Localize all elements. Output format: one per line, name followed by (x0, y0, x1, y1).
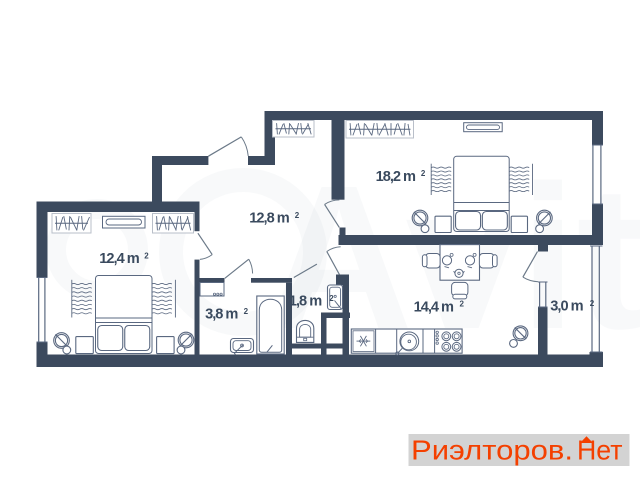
svg-text:14,4 m: 14,4 m (414, 299, 454, 315)
svg-text:1,8 m: 1,8 m (289, 294, 322, 310)
svg-text:3,0 m: 3,0 m (550, 299, 583, 315)
svg-text:2: 2 (421, 169, 426, 178)
svg-text:2: 2 (295, 211, 300, 220)
svg-text:2: 2 (144, 251, 149, 260)
svg-text:12,8 m: 12,8 m (249, 211, 289, 227)
svg-text:2: 2 (329, 294, 334, 303)
svg-text:2: 2 (590, 299, 595, 308)
svg-text:2: 2 (460, 300, 465, 309)
svg-text:12,4 m: 12,4 m (99, 251, 139, 267)
svg-text:Риэлторов.: Риэлторов. (411, 435, 573, 466)
svg-text:18,2 m: 18,2 m (376, 169, 416, 185)
svg-text:3,8 m: 3,8 m (205, 307, 238, 323)
svg-text:2: 2 (244, 307, 249, 316)
